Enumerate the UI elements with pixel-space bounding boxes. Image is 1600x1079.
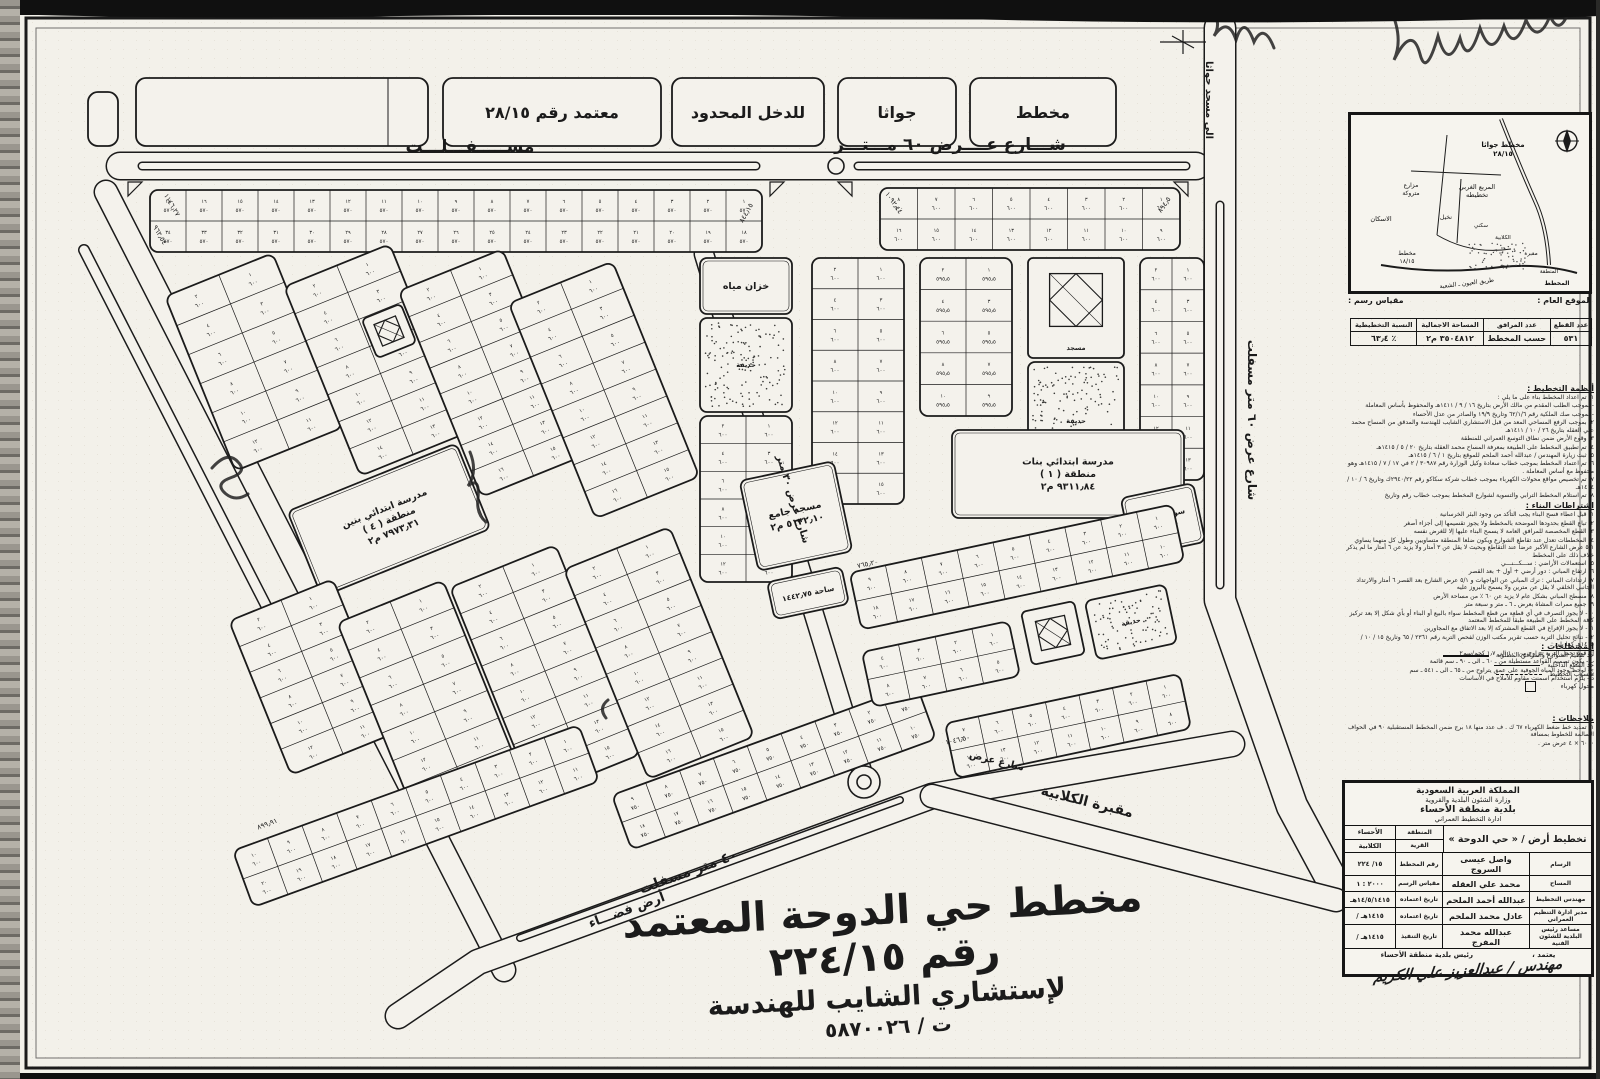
svg-text:٣: ٣ — [1085, 197, 1088, 203]
notes-section1: ١- تم اعداد المخطط بناء على ما يلي :- بم… — [1346, 394, 1594, 499]
key-label: تاريخ اعتماده — [1395, 908, 1442, 924]
svg-text:٢٥: ٢٥ — [489, 230, 495, 236]
stats-value-cell: ٥٣١ — [1550, 332, 1591, 346]
note-line: ٣- وقوع الأرض ضمن نطاق التوسع العمراني ل… — [1346, 435, 1594, 442]
svg-text:٦٠٠: ٦٠٠ — [1044, 206, 1053, 212]
location-map-captions: الموقع العام : مقياس رسم : — [1348, 296, 1592, 305]
svg-text:٦٠٠: ٦٠٠ — [894, 237, 903, 243]
person-name: عبدالله أحمد الملحم — [1442, 892, 1529, 907]
svg-text:٢٤: ٢٤ — [525, 230, 531, 236]
svg-text:٦٠٠: ٦٠٠ — [969, 237, 978, 243]
svg-text:٦٠٠: ٦٠٠ — [1183, 276, 1192, 282]
svg-text:٣٣: ٣٣ — [201, 230, 207, 236]
svg-text:٢: ٢ — [722, 423, 725, 429]
note-line: ٥- استعمالات الأراضي : ســـكـــنـــي — [1346, 560, 1594, 567]
note-line: ٢- تباع القطع بحدودها الموضحة بالمخطط ول… — [1346, 520, 1594, 527]
stats-table-wrap: عدد القطععدد المرافقالمساحة الاجماليةالن… — [1350, 318, 1592, 346]
svg-text:٢٦: ٢٦ — [453, 230, 459, 236]
key-label: تاريخ اعتماده — [1395, 892, 1442, 907]
svg-text:١: ١ — [743, 199, 746, 205]
legend-label: حد القطع الداخلية — [1547, 662, 1594, 669]
svg-text:٢٨: ٢٨ — [381, 230, 387, 236]
svg-text:٥٧٠: ٥٧٠ — [235, 239, 244, 245]
key-value: ١٤١٥هـ / — [1345, 925, 1395, 948]
ministry-header: وزارة الشئون البلدية والقروية — [1345, 796, 1591, 804]
svg-text:٣: ٣ — [988, 299, 991, 305]
svg-text:٦٠٠: ٦٠٠ — [830, 276, 839, 282]
svg-text:٥٧٠: ٥٧٠ — [451, 208, 460, 214]
svg-text:٥٩٥٫٥: ٥٩٥٫٥ — [982, 371, 996, 377]
stats-value-cell: حسب المخطط — [1483, 332, 1550, 346]
kingdom-header: المملكة العربية السعودية — [1345, 786, 1591, 796]
key-value: ١٤/٥/١٤١٥هـ — [1345, 892, 1395, 907]
svg-text:٥٧٠: ٥٧٠ — [739, 239, 748, 245]
svg-text:٥٧٠: ٥٧٠ — [415, 208, 424, 214]
svg-text:٥٧٠: ٥٧٠ — [595, 208, 604, 214]
svg-text:٨: ٨ — [722, 506, 725, 512]
svg-text:١٦: ١٦ — [201, 199, 207, 205]
svg-text:٦٠٠: ٦٠٠ — [876, 368, 885, 374]
svg-text:الاسكان: الاسكان — [1370, 215, 1391, 223]
svg-text:٥٩٥٫٥: ٥٩٥٫٥ — [936, 340, 950, 346]
svg-text:١: ١ — [1187, 267, 1190, 273]
svg-text:٥٧٠: ٥٧٠ — [415, 239, 424, 245]
svg-text:٦٠٠: ٦٠٠ — [830, 337, 839, 343]
svg-text:٩: ٩ — [880, 390, 883, 396]
svg-text:المنطقة: المنطقة — [1540, 269, 1559, 275]
svg-text:٥٧٠: ٥٧٠ — [307, 208, 316, 214]
svg-text:٢١: ٢١ — [633, 230, 638, 236]
note-line: - بموجب صك الملكية رقم ٦٢/١/٦ وتاريخ ١٩/… — [1346, 411, 1594, 418]
svg-text:٨: ٨ — [942, 362, 945, 368]
svg-text:١٠: ١٠ — [1121, 228, 1126, 234]
svg-text:١٣: ١٣ — [309, 199, 315, 205]
svg-text:٩: ٩ — [1160, 228, 1163, 234]
svg-text:٥٩٥٫٥: ٥٩٥٫٥ — [982, 403, 996, 409]
svg-text:٧: ٧ — [935, 197, 938, 203]
svg-text:٥٧٠: ٥٧٠ — [631, 208, 640, 214]
svg-text:٦٠٠: ٦٠٠ — [1183, 403, 1192, 409]
svg-text:٥٧٠: ٥٧٠ — [271, 239, 280, 245]
svg-text:٨: ٨ — [491, 199, 494, 205]
svg-text:شـــارع عــــرض ٦٠ مـــتـــر: شـــارع عــــرض ٦٠ مـــتـــر — [833, 135, 1066, 155]
svg-text:٢٣: ٢٣ — [561, 230, 567, 236]
legend-label: منسوب التخطيط — [1549, 671, 1594, 678]
svg-text:٢٠: ٢٠ — [669, 230, 674, 236]
svg-text:١٣: ١٣ — [878, 451, 884, 457]
scan-band-right — [1596, 0, 1600, 1079]
svg-text:٦٠٠: ٦٠٠ — [932, 237, 941, 243]
key-value: ١٤١٥هـ / — [1345, 908, 1395, 924]
svg-text:٦٠٠: ٦٠٠ — [876, 430, 885, 436]
svg-text:٦٠٠: ٦٠٠ — [1157, 237, 1166, 243]
stats-header-cell: النسبة التخطيطية — [1351, 319, 1417, 332]
municipality-header: بلدية منطقة الأحساء — [1345, 804, 1591, 815]
svg-text:٦٠٠: ٦٠٠ — [876, 399, 885, 405]
legend-sample-solid — [1443, 655, 1489, 657]
role-label: الرسام — [1529, 853, 1591, 875]
approval-title-row: تخطيط أرض / « حي الدوحة » المنطقة الأحسا… — [1345, 826, 1591, 853]
svg-text:٦٠٠: ٦٠٠ — [1183, 340, 1192, 346]
svg-text:٥٧٠: ٥٧٠ — [559, 208, 568, 214]
svg-text:٦٠٠: ٦٠٠ — [1044, 237, 1053, 243]
svg-text:٣: ٣ — [1187, 299, 1190, 305]
svg-text:١٠: ١٠ — [940, 394, 945, 400]
note-line: ٤- المخططات تعدل عند تقاطع الشوارع ويكون… — [1346, 537, 1594, 559]
svg-text:٦٠٠: ٦٠٠ — [876, 307, 885, 313]
stats-header-cell: المساحة الاجمالية — [1417, 319, 1483, 332]
svg-text:٥٧٠: ٥٧٠ — [199, 208, 208, 214]
svg-text:٦: ٦ — [1155, 331, 1158, 337]
svg-text:٢: ٢ — [707, 199, 710, 205]
svg-text:٦٠٠: ٦٠٠ — [876, 337, 885, 343]
svg-text:١٠: ١٠ — [832, 390, 837, 396]
stats-header-cell: عدد القطع — [1550, 319, 1591, 332]
svg-text:٥٩٥٫٥: ٥٩٥٫٥ — [936, 371, 950, 377]
svg-text:١٠: ١٠ — [417, 199, 422, 205]
svg-text:٧: ٧ — [527, 199, 530, 205]
svg-text:٦٠٠: ٦٠٠ — [1119, 237, 1128, 243]
svg-text:١٦: ١٦ — [896, 228, 902, 234]
svg-text:سكني: سكني — [1474, 222, 1488, 229]
svg-text:٥٧٠: ٥٧٠ — [379, 239, 388, 245]
svg-text:١٤: ١٤ — [832, 451, 838, 457]
svg-text:١٥: ١٥ — [237, 199, 243, 205]
region-village-stack: المنطقة الأحساء القرية الكلابية — [1345, 826, 1443, 852]
svg-text:١٤: ١٤ — [273, 199, 279, 205]
note-line: ٦- تم اعتماد المخطط بموجب خطاب سعادة وكي… — [1346, 460, 1594, 475]
stats-header-row: عدد القطععدد المرافقالمساحة الاجماليةالن… — [1351, 319, 1592, 332]
note-line: ٩- جميع ممرات المشاة بعرض ـ ٦ ـ متر و سب… — [1346, 601, 1594, 608]
svg-text:مســـــفـــلـــت: مســـــفـــلـــت — [406, 137, 535, 157]
svg-text:٩٣١١٫٨٤ م٢: ٩٣١١٫٨٤ م٢ — [1041, 482, 1096, 493]
svg-text:مزارع: مزارع — [1404, 182, 1419, 189]
svg-text:٦٠٠: ٦٠٠ — [830, 430, 839, 436]
department-header: ادارة التخطيط العمراني — [1345, 815, 1591, 823]
svg-text:٦٠٠: ٦٠٠ — [1082, 237, 1091, 243]
svg-text:٦٠٠: ٦٠٠ — [1119, 206, 1128, 212]
plan-title-calligraphy: مخطط حي الدوحة المعتمد رقم ٢٢٤/١٥ لإستشا… — [586, 873, 1183, 1055]
svg-text:٢: ٢ — [1122, 197, 1125, 203]
svg-text:٦٠٠: ٦٠٠ — [876, 460, 885, 466]
svg-text:١٠: ١٠ — [720, 534, 725, 540]
role-label: مدير ادارة التنظيم العمراني — [1529, 908, 1591, 924]
svg-text:٢٢: ٢٢ — [597, 230, 603, 236]
note-line: ٨- تم استلام المخطط الترابي والتسوية لشو… — [1346, 492, 1594, 499]
note-line: ٥- ثبت زيارة المهندس / عبدالله أحمد المل… — [1346, 452, 1594, 459]
village-value: الكلابية — [1345, 840, 1395, 853]
svg-text:٤: ٤ — [635, 199, 638, 205]
region-value: الأحساء — [1345, 826, 1395, 839]
svg-text:١٤: ١٤ — [971, 228, 977, 234]
note-line: ١- قبل اعطاء فسح البناء يجب التأكد من وج… — [1346, 511, 1594, 518]
person-name: عبدالله محمد المفرج — [1442, 925, 1529, 948]
svg-text:حديقة: حديقة — [1066, 417, 1086, 425]
svg-text:٦٠٠: ٦٠٠ — [969, 206, 978, 212]
svg-text:١٢: ١٢ — [720, 562, 726, 568]
svg-text:٢٩: ٢٩ — [345, 230, 351, 236]
approval-row: الرسام واصل عيسى السروج رقم المخطط ١٥/ ٢… — [1345, 853, 1591, 876]
caption-scale: مقياس رسم : — [1348, 296, 1404, 305]
svg-text:للدخل المحدود: للدخل المحدود — [691, 103, 805, 122]
svg-text:٦٠٠: ٦٠٠ — [830, 307, 839, 313]
role-label: مهندس التخطيط — [1529, 892, 1591, 907]
stats-value-row: ٥٣١حسب المخطط٣٥٠٤٨١٢ م٢٪ ٦٣٫٤ — [1351, 332, 1592, 346]
note-line: ٤- تم تطبيق المخطط على الطبيعة بمعرفة ال… — [1346, 444, 1594, 451]
svg-text:٢٨/١٥: ٢٨/١٥ — [1493, 150, 1513, 158]
notes-section2-title: اشتراطات البناء : — [1346, 501, 1594, 510]
svg-text:٣: ٣ — [880, 298, 883, 304]
svg-text:٧: ٧ — [880, 359, 883, 365]
note-line: ٧- ارتدادات المباني : ترك المباني عن الو… — [1346, 577, 1594, 592]
svg-text:٥٧٠: ٥٧٠ — [343, 239, 352, 245]
svg-text:حديقة: حديقة — [736, 361, 756, 369]
scan-band-bottom — [0, 1073, 1600, 1079]
svg-text:١٨: ١٨ — [741, 230, 747, 236]
svg-text:٥٧٠: ٥٧٠ — [271, 208, 280, 214]
svg-text:٢: ٢ — [1155, 267, 1158, 273]
svg-text:٥٩٥٫٥: ٥٩٥٫٥ — [936, 308, 950, 314]
svg-text:٣: ٣ — [671, 199, 674, 205]
note-line: ١- تمديد خط ضغط الكهرباء ٦٧ ك . ف عدد من… — [1346, 724, 1594, 739]
svg-text:١١: ١١ — [1084, 228, 1089, 234]
svg-text:الكلابية: الكلابية — [1495, 234, 1511, 241]
svg-text:نخيل: نخيل — [1440, 214, 1452, 221]
svg-text:٣٤: ٣٤ — [165, 230, 171, 236]
svg-text:٦٠٠: ٦٠٠ — [1151, 276, 1160, 282]
svg-text:١٣: ١٣ — [1185, 458, 1191, 464]
remarks-lines: ١- تمديد خط ضغط الكهرباء ٦٧ ك . ف عدد من… — [1346, 724, 1594, 747]
approval-row: مساعد رئيس البلدية للشئون الفنية عبدالله… — [1345, 925, 1591, 949]
svg-text:٦٠٠: ٦٠٠ — [876, 491, 885, 497]
svg-text:مدرسة ابتدائي بنات: مدرسة ابتدائي بنات — [1022, 457, 1114, 468]
svg-text:٦٠٠: ٦٠٠ — [932, 206, 941, 212]
legend-row: حد تنظيم الشوارع والمرافق المطلوبة — [1346, 652, 1594, 659]
svg-text:٣: ٣ — [768, 451, 771, 457]
svg-text:١: ١ — [768, 423, 771, 429]
note-line: ٧- تم تخصيص مواقع محولات الكهرباء بموجب … — [1346, 476, 1594, 491]
legend-rows: حد تنظيم الشوارع والمرافق المطلوبةحد الق… — [1346, 652, 1594, 692]
svg-text:خزان مياه: خزان مياه — [723, 281, 769, 292]
svg-text:٥٧٠: ٥٧٠ — [199, 239, 208, 245]
stats-value-cell: ٪ ٦٣٫٤ — [1351, 332, 1417, 346]
svg-text:١٥: ١٥ — [878, 482, 884, 488]
svg-text:٦٠٠: ٦٠٠ — [718, 460, 727, 466]
svg-text:٥٩٥٫٥: ٥٩٥٫٥ — [982, 308, 996, 314]
svg-text:٥: ٥ — [988, 331, 991, 337]
svg-text:٥٧٠: ٥٧٠ — [487, 239, 496, 245]
legend-sample-dash — [1496, 674, 1542, 675]
legend-sample-thin — [1494, 665, 1540, 666]
svg-text:١٢: ١٢ — [1046, 228, 1052, 234]
svg-text:١٩: ١٩ — [705, 230, 711, 236]
svg-text:٥٧٠: ٥٧٠ — [523, 208, 532, 214]
svg-text:٨: ٨ — [1155, 363, 1158, 369]
location-map: مخطط جواثا٢٨/١٥المربع الغربيتخطيطهمزارعم… — [1351, 115, 1589, 291]
svg-text:٥٩٥٫٥: ٥٩٥٫٥ — [936, 276, 950, 282]
legend-label: حد تنظيم الشوارع والمرافق المطلوبة — [1496, 652, 1594, 659]
svg-text:٤: ٤ — [834, 298, 837, 304]
svg-text:متروكة: متروكة — [1402, 190, 1419, 197]
svg-text:معتمد رقم ٢٨/١٥: معتمد رقم ٢٨/١٥ — [485, 103, 619, 122]
svg-text:٥: ٥ — [1187, 331, 1190, 337]
svg-text:٥٧٠: ٥٧٠ — [343, 208, 352, 214]
svg-text:٦٠٠: ٦٠٠ — [1151, 372, 1160, 378]
approval-row: مهندس التخطيط عبدالله أحمد الملحم تاريخ … — [1345, 892, 1591, 908]
svg-text:٩: ٩ — [455, 199, 458, 205]
svg-text:٥٧٠: ٥٧٠ — [379, 208, 388, 214]
svg-text:٦٠٠: ٦٠٠ — [718, 488, 727, 494]
svg-text:٥٧٠: ٥٧٠ — [667, 208, 676, 214]
person-name: محمد علي العقله — [1442, 876, 1529, 891]
svg-text:٦٠٠: ٦٠٠ — [764, 571, 773, 577]
remarks-title: ملاحظات : — [1346, 714, 1594, 723]
svg-text:٥٧٠: ٥٧٠ — [703, 208, 712, 214]
notes-section1-title: أنظمة التخطيط : — [1346, 384, 1594, 393]
svg-text:شارع عرض ٦٠ متر مسفلت: شارع عرض ٦٠ متر مسفلت — [1245, 340, 1259, 500]
svg-text:٧: ٧ — [988, 362, 991, 368]
svg-text:٤: ٤ — [1155, 299, 1158, 305]
approval-grid: تخطيط أرض / « حي الدوحة » المنطقة الأحسا… — [1345, 825, 1591, 949]
key-label: تاريخ التنفيذ — [1395, 925, 1442, 948]
svg-text:٦٠٠: ٦٠٠ — [764, 432, 773, 438]
svg-text:٦٠٠: ٦٠٠ — [1151, 340, 1160, 346]
svg-text:تخطيطه: تخطيطه — [1466, 191, 1488, 199]
svg-text:مقبرة: مقبرة — [1524, 251, 1537, 257]
legend-title: المصطلحات : — [1346, 642, 1594, 651]
village-label: القرية — [1395, 840, 1443, 853]
key-value: ٢٠٠٠ : ١ — [1345, 876, 1395, 891]
svg-text:٦: ٦ — [942, 331, 945, 337]
svg-text:٦٠٠: ٦٠٠ — [1151, 403, 1160, 409]
svg-text:مخطط جواثا: مخطط جواثا — [1481, 141, 1524, 149]
svg-text:٥٧٠: ٥٧٠ — [667, 239, 676, 245]
svg-text:٩: ٩ — [1187, 394, 1190, 400]
svg-text:٧: ٧ — [1187, 363, 1190, 369]
scanned-subdivision-plan: { "document": { "type": "مخطط تقسيم أراض… — [0, 0, 1600, 1079]
svg-text:٦: ٦ — [563, 199, 566, 205]
approval-title-block: المملكة العربية السعودية وزارة الشئون ال… — [1342, 780, 1594, 977]
stats-table: عدد القطععدد المرافقالمساحة الاجماليةالن… — [1350, 318, 1592, 346]
svg-text:١٨/١٥: ١٨/١٥ — [1400, 258, 1415, 265]
svg-text:٩: ٩ — [988, 394, 991, 400]
svg-text:٥٩٥٫٥: ٥٩٥٫٥ — [936, 403, 950, 409]
svg-text:٥٧٠: ٥٧٠ — [235, 208, 244, 214]
remarks: ملاحظات : ١- تمديد خط ضغط الكهرباء ٦٧ ك … — [1346, 712, 1594, 748]
svg-text:١: ١ — [880, 267, 883, 273]
key-value: ١٥/ ٢٢٤ — [1345, 853, 1395, 875]
svg-text:١٠: ١٠ — [1153, 394, 1158, 400]
plan-title-cell: تخطيط أرض / « حي الدوحة » — [1443, 826, 1591, 852]
stats-value-cell: ٣٥٠٤٨١٢ م٢ — [1417, 332, 1483, 346]
svg-text:٦٠٠: ٦٠٠ — [830, 368, 839, 374]
svg-text:٥٩٥٫٥: ٥٩٥٫٥ — [982, 276, 996, 282]
svg-text:١٣: ١٣ — [1009, 228, 1015, 234]
svg-text:١١: ١١ — [878, 421, 883, 427]
role-label: المساح — [1529, 876, 1591, 891]
legend-label: محول كهرباء — [1561, 683, 1594, 690]
svg-text:١: ١ — [988, 267, 991, 273]
svg-text:٦: ٦ — [972, 197, 975, 203]
svg-text:٥٧٠: ٥٧٠ — [451, 239, 460, 245]
note-line: ١٠- لا يجوز التصرف في أي قطعة من قطع الم… — [1346, 610, 1594, 625]
svg-text:٥٩٥٫٥: ٥٩٥٫٥ — [982, 340, 996, 346]
svg-text:٨: ٨ — [834, 359, 837, 365]
legend-row: حد القطع الداخلية — [1346, 662, 1594, 669]
svg-text:٢: ٢ — [834, 267, 837, 273]
svg-text:٦٠٠: ٦٠٠ — [718, 515, 727, 521]
svg-text:٦: ٦ — [722, 479, 725, 485]
person-name: واصل عيسى السروج — [1442, 853, 1529, 875]
note-line: ٨- مسطح المباني بشكل عام لا يزيد عن ٦٠ ٪… — [1346, 593, 1594, 600]
svg-text:٦: ٦ — [834, 328, 837, 334]
svg-text:٤: ٤ — [722, 451, 725, 457]
caption-general-site: الموقع العام : — [1537, 296, 1592, 305]
svg-text:٦٠٠: ٦٠٠ — [764, 460, 773, 466]
svg-text:٥٧٠: ٥٧٠ — [595, 239, 604, 245]
svg-text:مخطط: مخطط — [1398, 250, 1416, 257]
svg-text:٥٧٠: ٥٧٠ — [703, 239, 712, 245]
note-line: ٢- بموجب الرفع المساحي المعد من قبل الاس… — [1346, 419, 1594, 434]
svg-text:١٢: ١٢ — [832, 421, 838, 427]
svg-text:جواثا: جواثا — [877, 103, 916, 122]
svg-text:٥٧٠: ٥٧٠ — [631, 239, 640, 245]
svg-text:٦٠٠: ٦٠٠ — [876, 276, 885, 282]
svg-text:٨٩٩٫٩١: ٨٩٩٫٩١ — [256, 817, 279, 832]
note-line: - بموجب الطلب المقدم من مالك الأرض بتاري… — [1346, 402, 1594, 409]
person-name: عادل محمد الملحم — [1442, 908, 1529, 924]
svg-text:٦٠٠: ٦٠٠ — [1183, 372, 1192, 378]
svg-text:الى مسجد جواثا: الى مسجد جواثا — [1203, 61, 1214, 139]
key-label: مقياس الرسم — [1395, 876, 1442, 891]
region-label: المنطقة — [1395, 826, 1443, 839]
note-line: ٣- القطع المخصصة للمرافق العامة لا يسمح … — [1346, 528, 1594, 535]
key-label: رقم المخطط — [1395, 853, 1442, 875]
svg-text:١١: ١١ — [1185, 426, 1190, 432]
legend: المصطلحات : حد تنظيم الشوارع والمرافق ال… — [1346, 640, 1594, 694]
svg-text:٥: ٥ — [880, 328, 883, 334]
svg-text:٣٢: ٣٢ — [237, 230, 243, 236]
svg-text:٤: ٤ — [1047, 197, 1050, 203]
svg-text:١١: ١١ — [381, 199, 386, 205]
svg-text:٦٠٠: ٦٠٠ — [1082, 206, 1091, 212]
legend-row: محول كهرباء — [1346, 681, 1594, 692]
stats-header-cell: عدد المرافق — [1483, 319, 1550, 332]
note-line: ٦- ارتفاع المباني : دور أرضي + أول + بعد… — [1346, 568, 1594, 575]
svg-text:٤: ٤ — [942, 299, 945, 305]
scan-band-top — [0, 0, 1600, 15]
approve-by: رئيس بلدية منطقة الأحساء — [1381, 951, 1473, 959]
svg-text:مخطط: مخطط — [1016, 103, 1070, 122]
svg-text:٦٠٠: ٦٠٠ — [1007, 206, 1016, 212]
svg-text:٦٠٠: ٦٠٠ — [718, 432, 727, 438]
svg-text:طريق العيون ـ الشعبة: طريق العيون ـ الشعبة — [1439, 277, 1494, 291]
role-label: مساعد رئيس البلدية للشئون الفنية — [1529, 925, 1591, 948]
scan-band-left — [0, 0, 20, 1079]
svg-text:١٥: ١٥ — [934, 228, 940, 234]
svg-text:٥٧٠: ٥٧٠ — [523, 239, 532, 245]
svg-text:مسجد: مسجد — [1066, 344, 1085, 352]
svg-text:٥: ٥ — [599, 199, 602, 205]
svg-text:٥٧٠: ٥٧٠ — [307, 239, 316, 245]
location-map-box: مخطط جواثا٢٨/١٥المربع الغربيتخطيطهمزارعم… — [1348, 112, 1592, 294]
legend-row: منسوب التخطيط — [1346, 671, 1594, 678]
svg-text:٢٧: ٢٧ — [417, 230, 423, 236]
svg-text:٦٠٠: ٦٠٠ — [718, 543, 727, 549]
svg-text:٦٠٠: ٦٠٠ — [1007, 237, 1016, 243]
approval-row: مدير ادارة التنظيم العمراني عادل محمد ال… — [1345, 908, 1591, 925]
svg-text:٥٧٠: ٥٧٠ — [559, 239, 568, 245]
